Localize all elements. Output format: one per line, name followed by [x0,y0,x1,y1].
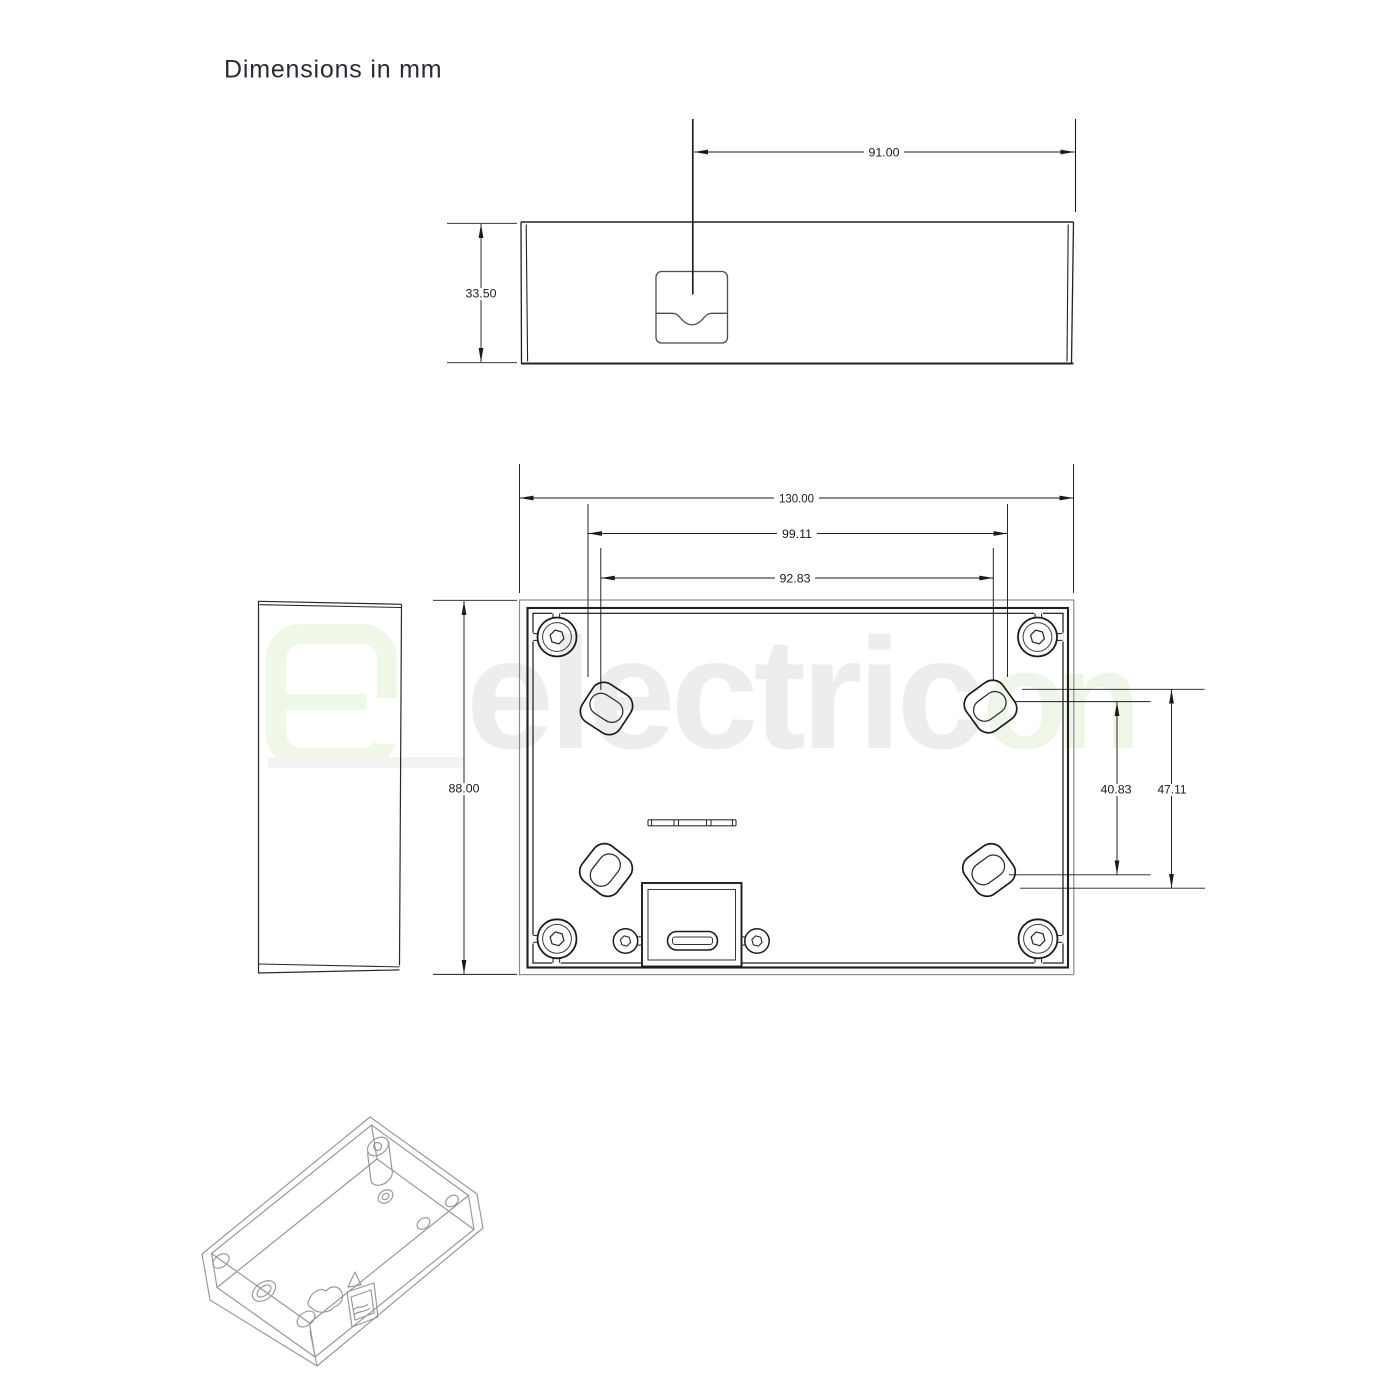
svg-text:on: on [982,621,1133,778]
svg-text:92.83: 92.83 [780,572,811,586]
svg-text:130.00: 130.00 [779,492,814,506]
svg-text:99.11: 99.11 [782,527,812,541]
svg-text:47.11: 47.11 [1158,783,1187,797]
svg-text:40.83: 40.83 [1101,783,1132,797]
svg-text:88.00: 88.00 [449,782,480,796]
svg-text:Dimensions in mm: Dimensions in mm [224,56,442,84]
svg-text:33.50: 33.50 [466,287,497,301]
svg-text:91.00: 91.00 [869,146,900,160]
